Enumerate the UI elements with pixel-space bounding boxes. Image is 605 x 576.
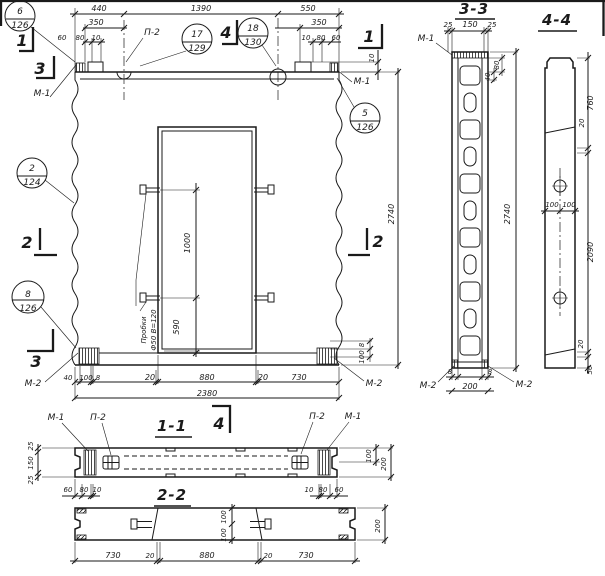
plug-note-line2: Ф50 В=120 <box>150 309 158 351</box>
label-p2-right-11: П-2 <box>309 412 325 422</box>
plug-plate <box>140 293 146 302</box>
callout-leader <box>337 78 354 107</box>
plug-note-line1: Пробки <box>140 316 148 344</box>
callout-18-sheet: 130 <box>244 38 261 48</box>
column-outline <box>452 52 488 368</box>
dim-20-right: 20 <box>264 552 273 560</box>
section-2-2-title: 2-2 <box>157 486 187 504</box>
dim-2380: 2380 <box>197 389 217 398</box>
section-mark-2-left-label: 2 <box>21 233 32 252</box>
label-leader <box>45 353 78 382</box>
plug-lines <box>137 522 152 528</box>
section-1-1-title: 1-1 <box>157 417 187 435</box>
label-leader <box>62 423 88 451</box>
dim-350-right: 350 <box>311 18 326 27</box>
section-mark-3-top-label: 3 <box>34 59 45 78</box>
label-m1-top-right: М-1 <box>354 77 371 87</box>
dim-1000: 1000 <box>183 233 192 253</box>
dim-10-corner: 10 <box>368 53 376 62</box>
label-leader <box>301 422 313 454</box>
dim-25-bottom: 25 <box>27 475 35 484</box>
label-m2-right-section33: М-2 <box>516 380 533 390</box>
callout-17-num: 17 <box>191 30 203 40</box>
section-4-4: 4-4 100 100 760 20 2090 20 50 <box>538 11 595 374</box>
section-mark-2-right-label: 2 <box>372 232 383 251</box>
extension-lines <box>42 448 75 477</box>
section-mark-4-top-label: 4 <box>219 23 231 42</box>
plug-detail <box>292 456 308 469</box>
dim-200: 200 <box>462 382 477 391</box>
label-p2-left-11: П-2 <box>90 413 106 423</box>
dim-20-left: 20 <box>146 552 155 560</box>
corner-embed <box>77 509 86 513</box>
plug-plate <box>265 519 271 529</box>
dim-40: 40 <box>64 374 73 382</box>
dim-10-left: 10 <box>93 486 102 494</box>
dim-760: 760 <box>586 95 595 110</box>
dim-100-top: 100 <box>220 510 228 524</box>
dim-20-bottom: 20 <box>577 339 585 348</box>
section-mark-1-right-label: 1 <box>363 27 374 46</box>
dim-100-left: 100 <box>545 201 559 209</box>
corner-offset-dim: 10 <box>311 50 381 80</box>
drawing-sheet: 440 1390 550 350 350 60 80 10 10 80 60 1… <box>0 0 605 576</box>
callout-17-sheet: 129 <box>188 44 205 54</box>
section-mark-3-bottom-label: 3 <box>30 352 41 371</box>
section-4-4-title: 4-4 <box>541 11 572 29</box>
embed-m1-top-left <box>76 63 85 72</box>
callout-5-num: 5 <box>362 109 368 119</box>
embed-m1-top-right <box>330 63 338 72</box>
dim-100-vert: 100 <box>358 350 366 364</box>
section-mark-2-right <box>348 228 370 255</box>
callout-8-num: 8 <box>25 290 31 300</box>
callout-leader <box>140 51 186 66</box>
dim-25-right: 25 <box>488 21 497 29</box>
label-m2-bottom-left: М-2 <box>25 379 42 389</box>
section-1-1: 1-1 4 25 150 25 60 80 10 10 80 60 100 20… <box>27 406 394 499</box>
jamb-plugs <box>140 185 274 302</box>
dim-730-right: 730 <box>298 551 313 560</box>
dim-200-side: 200 <box>374 519 382 533</box>
core-notch-marks <box>166 448 297 477</box>
plug-plate <box>268 185 274 194</box>
dim-440: 440 <box>91 4 106 13</box>
dim-8: 8 <box>96 374 101 382</box>
dim-20-left: 20 <box>145 373 155 382</box>
label-leader <box>126 38 143 62</box>
dim-60-left: 60 <box>58 34 67 42</box>
label-leader <box>102 423 111 455</box>
dim-150-side: 150 <box>27 456 35 470</box>
section-3-3: 3-3 25 150 25 80 40 2740 8 8 200 М-1 <box>418 0 533 394</box>
panel-drawing: 440 1390 550 350 350 60 80 10 10 80 60 1… <box>0 0 605 576</box>
dim-550: 550 <box>300 4 315 13</box>
dim-20-top: 20 <box>578 118 586 127</box>
plug-plate <box>131 519 137 529</box>
dim-80-left: 80 <box>80 486 89 494</box>
dim-60-left: 60 <box>64 486 73 494</box>
section-mark-2-left <box>34 228 57 255</box>
dim-2090: 2090 <box>586 242 595 262</box>
label-leader <box>436 43 452 55</box>
callout-leader <box>262 45 276 66</box>
top-left-notch <box>88 62 103 72</box>
label-m2-left-section33: М-2 <box>420 381 437 391</box>
callout-8-sheet: 126 <box>19 304 36 314</box>
dim-590: 590 <box>172 319 181 334</box>
section-mark-1-left-label: 1 <box>16 31 27 50</box>
label-m1-left-11: М-1 <box>48 413 65 423</box>
panel-right-corrugated-edge <box>336 72 342 365</box>
label-m1-top-left: М-1 <box>34 89 51 99</box>
label-m2-bottom-right: М-2 <box>366 379 383 389</box>
dim-80-right: 80 <box>319 486 328 494</box>
extension-lines <box>357 508 387 540</box>
plug-plate <box>268 293 274 302</box>
top-right-notch <box>295 62 311 72</box>
dim-20-right: 20 <box>258 373 268 382</box>
plug-plate <box>140 185 146 194</box>
embed-m1-left <box>84 450 96 475</box>
core-channel-walls <box>458 58 482 362</box>
callout-2-sheet: 124 <box>23 178 40 188</box>
jamb-break-lines <box>152 508 262 540</box>
dim-10-left: 10 <box>92 34 101 42</box>
label-p2: П-2 <box>144 28 160 38</box>
callout-18-num: 18 <box>247 24 259 34</box>
bottom-dimensions: 40 100 8 20 880 20 730 2380 8 100 <box>64 338 373 401</box>
dim-80-right: 80 <box>317 34 326 42</box>
callout-5-sheet: 126 <box>356 123 373 133</box>
height-dimension: 2740 <box>341 68 401 369</box>
door-opening-outer <box>158 127 256 353</box>
target-cross <box>552 288 568 308</box>
callout-6-sheet: 126 <box>11 21 28 31</box>
dim-80: 80 <box>493 60 501 69</box>
plug-lines <box>250 522 265 528</box>
dim-60-right: 60 <box>332 34 341 42</box>
dim-880: 880 <box>199 551 214 560</box>
label-m1-right-11: М-1 <box>345 412 362 422</box>
dim-100-bottom: 100 <box>220 528 228 542</box>
dim-2740: 2740 <box>387 204 396 224</box>
core-void-dashed-lines <box>124 456 288 469</box>
dim-50: 50 <box>586 365 594 374</box>
dim-10-right: 10 <box>305 486 314 494</box>
hollow-cores <box>460 66 480 355</box>
dim-100-side: 100 <box>365 449 373 463</box>
embed-m1-right <box>318 450 330 475</box>
target-cross <box>552 176 568 196</box>
bearing-pad-left <box>79 348 99 364</box>
dim-40: 40 <box>484 72 492 81</box>
dim-730-left: 730 <box>105 551 120 560</box>
dim-8-left: 8 <box>448 368 453 376</box>
dim-200-side: 200 <box>380 457 388 471</box>
plug-detail <box>103 456 119 469</box>
dim-150: 150 <box>462 20 477 29</box>
callout-bubbles: 6 126 17 129 18 130 5 126 2 124 8 126 <box>5 1 380 348</box>
section-mark-3-bottom <box>27 329 53 351</box>
section-2-2: 2-2 100 100 730 20 880 20 730 200 <box>70 486 388 564</box>
dim-880: 880 <box>199 373 214 382</box>
dim-8-right: 8 <box>488 368 493 376</box>
dim-25-left: 25 <box>444 21 453 29</box>
section-3-3-title: 3-3 <box>459 0 489 18</box>
dim-1390: 1390 <box>191 4 211 13</box>
dim-730: 730 <box>291 373 306 382</box>
strip-outline <box>75 508 355 540</box>
corner-embed <box>339 535 348 539</box>
main-elevation-view: 440 1390 550 350 350 60 80 10 10 80 60 1… <box>5 1 401 401</box>
dim-10-right: 10 <box>302 34 311 42</box>
panel-left-corrugated-edge <box>72 72 78 365</box>
opening-dimensions: 1000 590 Пробки Ф50 В=120 <box>136 183 200 357</box>
callout-leader <box>45 180 74 203</box>
label-m1-section33: М-1 <box>418 34 435 44</box>
dim-2740-section: 2740 <box>503 204 512 224</box>
dim-80-left: 80 <box>76 34 85 42</box>
door-opening-inner <box>162 131 252 349</box>
callout-leader <box>41 307 76 348</box>
section-mark-4-bottom-label: 4 <box>212 414 224 433</box>
anchor-plugs <box>131 519 271 529</box>
extension-lines <box>311 62 380 72</box>
label-leader <box>327 422 349 450</box>
dim-60-right: 60 <box>335 486 344 494</box>
bearing-pad-right <box>317 348 337 364</box>
dim-350-left: 350 <box>88 18 103 27</box>
dim-100: 100 <box>79 374 93 382</box>
embed-labels: П-2 М-1 М-1 М-2 М-2 <box>25 28 383 389</box>
callout-6-num: 6 <box>17 7 23 17</box>
corner-embed <box>77 535 86 539</box>
dim-25-top: 25 <box>27 441 35 450</box>
top-cap-m1 <box>452 52 488 58</box>
dim-8-vert: 8 <box>358 342 366 347</box>
dim-100-right: 100 <box>562 201 576 209</box>
callout-2-num: 2 <box>29 164 35 174</box>
bottom-pad-right <box>482 360 488 368</box>
corner-embed <box>339 509 348 513</box>
